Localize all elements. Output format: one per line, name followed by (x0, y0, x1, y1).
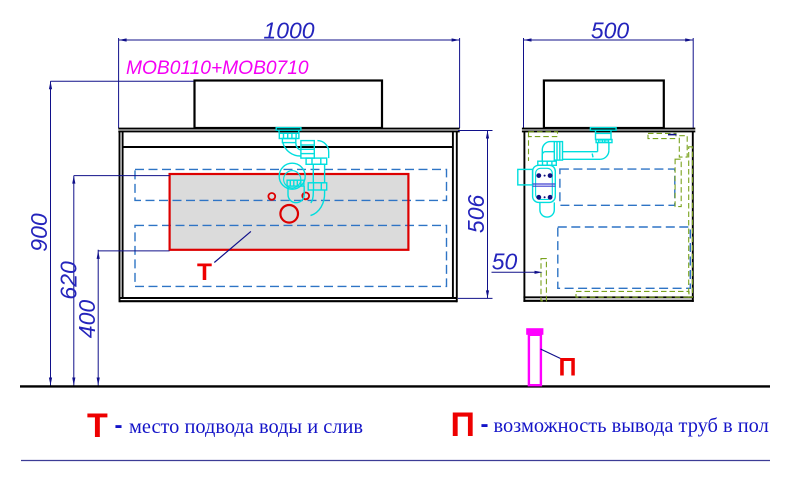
svg-text:место подвода воды и слив: место подвода воды и слив (129, 416, 363, 438)
svg-text:1000: 1000 (263, 18, 314, 44)
svg-text:400: 400 (74, 300, 100, 339)
svg-text:Т: Т (197, 259, 212, 286)
svg-text:900: 900 (26, 213, 52, 252)
svg-text:-: - (481, 411, 489, 438)
svg-text:Т: Т (87, 407, 108, 445)
svg-text:П: П (451, 406, 475, 444)
svg-text:-: - (115, 412, 123, 439)
svg-text:50: 50 (492, 249, 518, 275)
svg-text:500: 500 (591, 18, 630, 44)
svg-text:возможность вывода труб в пол: возможность вывода труб в пол (494, 415, 769, 437)
svg-text:MOB0110+MOB0710: MOB0110+MOB0710 (126, 58, 309, 79)
svg-text:506: 506 (463, 195, 489, 234)
svg-text:П: П (559, 353, 577, 381)
svg-text:620: 620 (56, 261, 82, 300)
